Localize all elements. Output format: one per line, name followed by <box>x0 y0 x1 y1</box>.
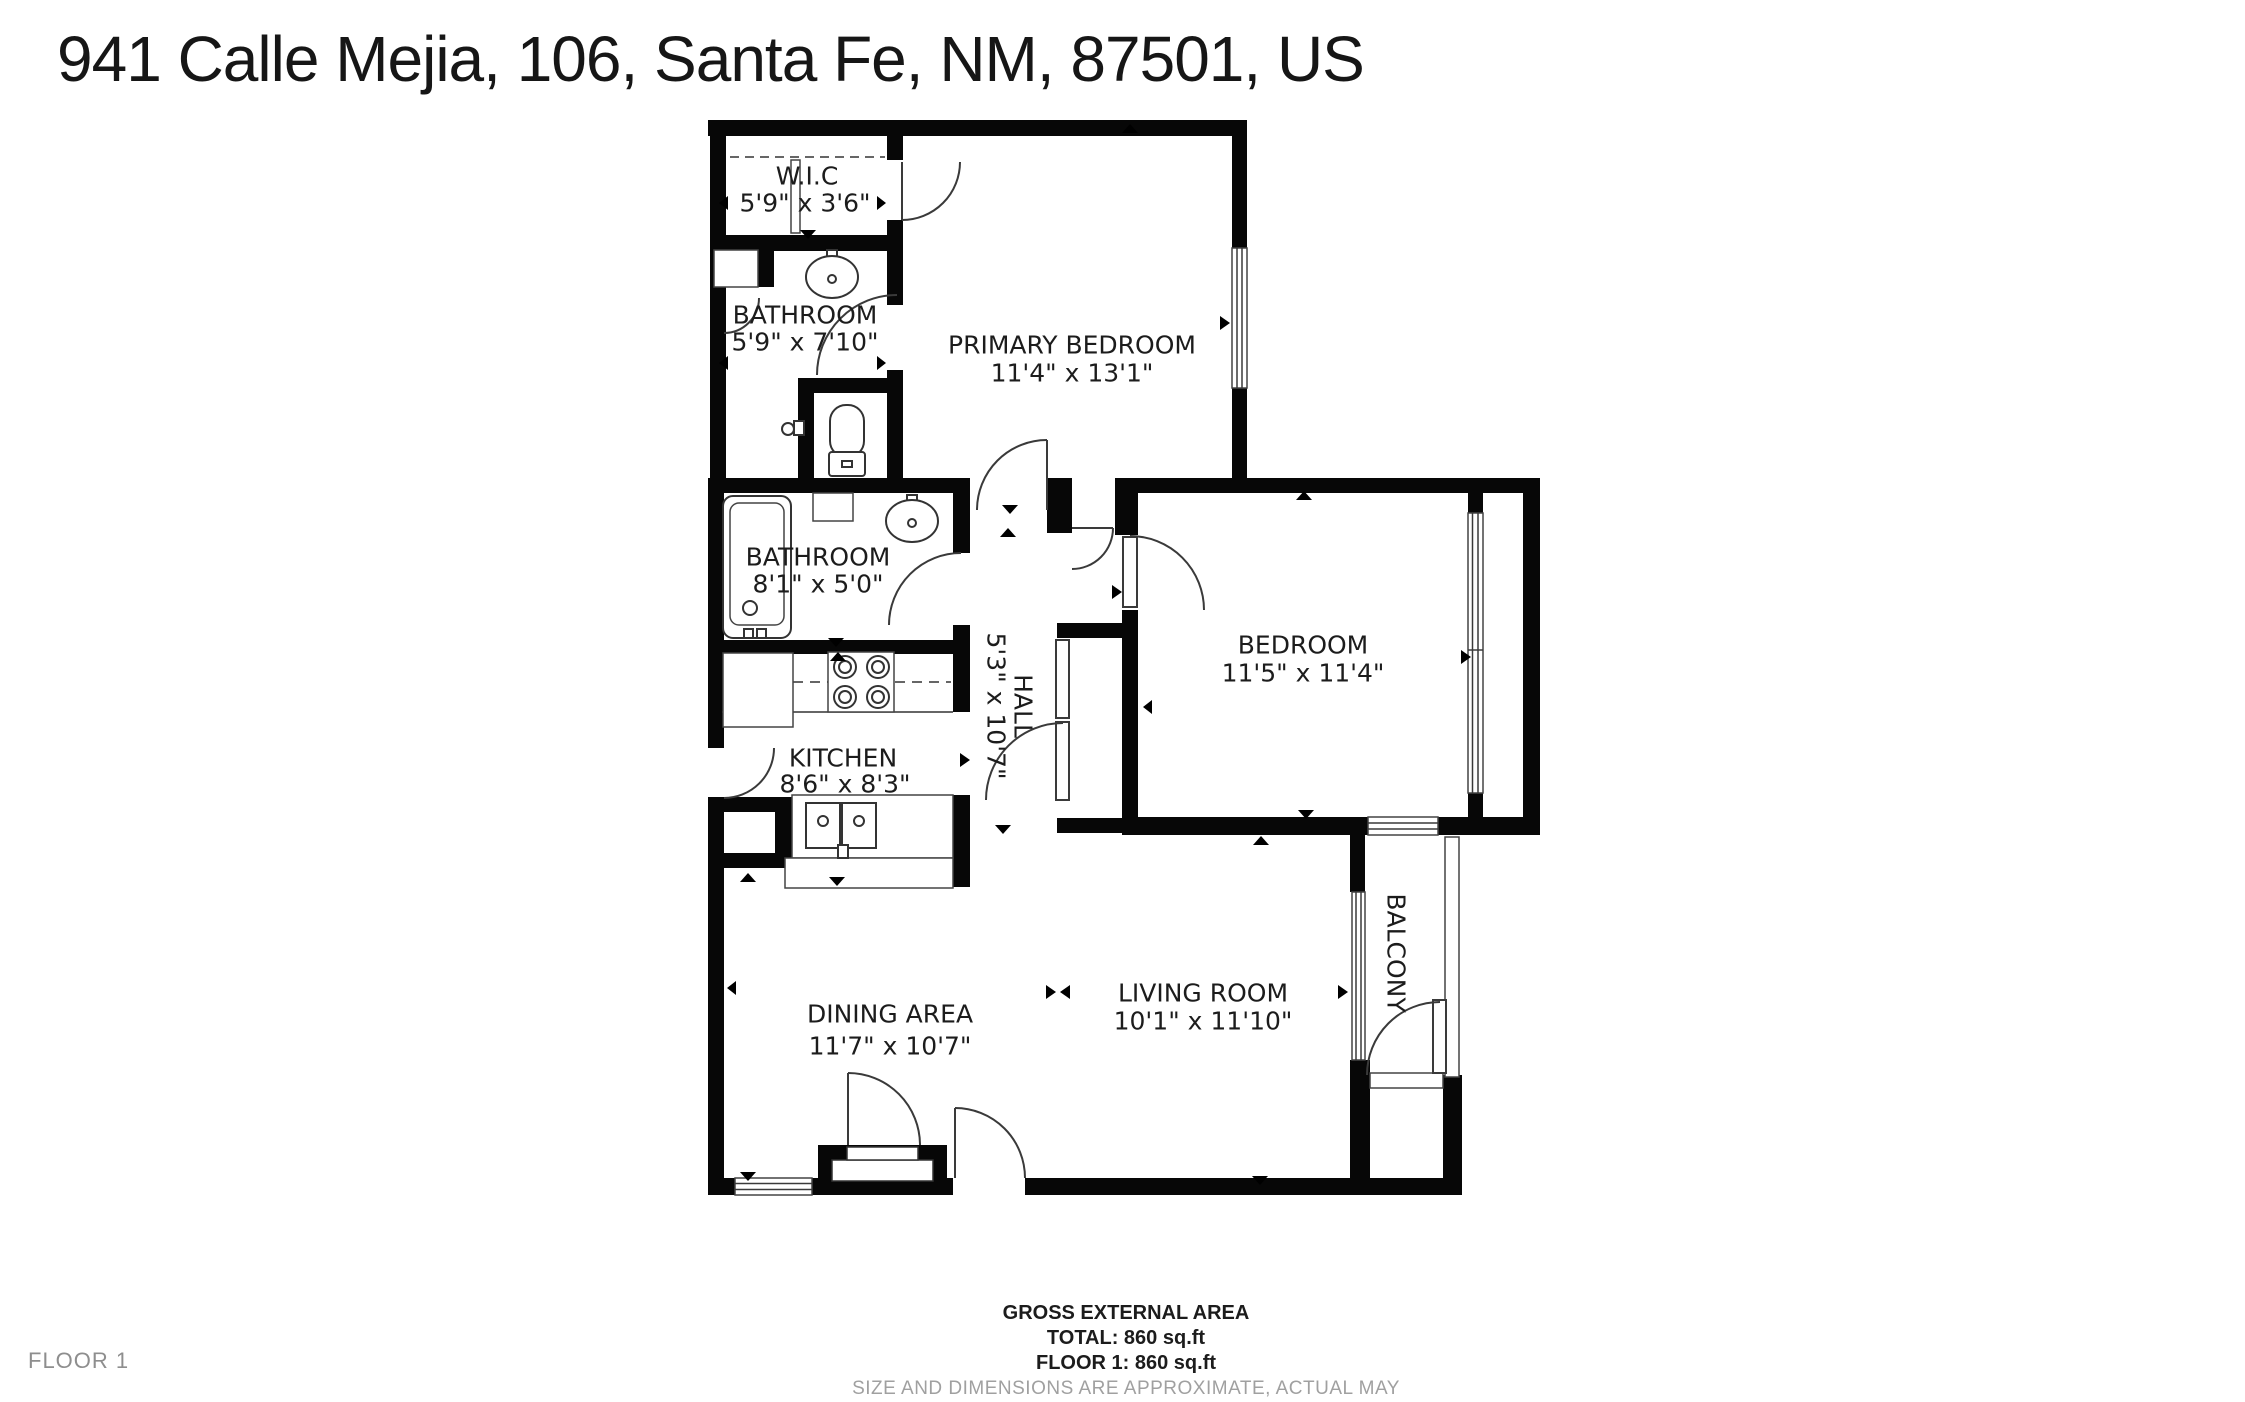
area-summary: GROSS EXTERNAL AREA TOTAL: 860 sq.ft FLO… <box>826 1300 1426 1402</box>
balcony-window <box>1368 817 1438 835</box>
room-label-primary-bedroom: PRIMARY BEDROOM <box>948 331 1196 360</box>
marker-triangle <box>740 873 756 882</box>
vanity-cabinet <box>813 493 853 521</box>
room-dims-wic: 5'9" x 3'6" <box>739 189 870 218</box>
marker-triangle <box>995 825 1011 834</box>
marker-triangle <box>1060 985 1070 999</box>
fridge-icon <box>723 653 793 727</box>
primary-bedroom-door-hall <box>977 440 1047 510</box>
room-dims-primary-bedroom: 11'4" x 13'1" <box>991 359 1154 388</box>
entry-door <box>848 1073 920 1145</box>
bedroom-door <box>1123 536 1204 610</box>
floor-area: FLOOR 1: 860 sq.ft <box>826 1351 1426 1376</box>
room-label-bedroom: BEDROOM <box>1238 631 1369 660</box>
primary-bedroom-door-top <box>902 162 960 220</box>
linen-closet-door <box>1072 528 1113 569</box>
total-area: TOTAL: 860 sq.ft <box>826 1326 1426 1351</box>
floor-label: FLOOR 1 <box>28 1348 129 1374</box>
room-label-dining: DINING AREA <box>807 1000 973 1029</box>
marker-triangle <box>1253 836 1269 845</box>
room-label-hall-group: HALL 5'3" x 10'7" <box>982 633 1038 780</box>
room-label-balcony-group: BALCONY <box>1382 893 1411 1013</box>
marker-triangle <box>877 196 886 210</box>
marker-triangle <box>1002 505 1018 514</box>
marker-triangle <box>1143 700 1152 714</box>
marker-triangle <box>1000 528 1016 537</box>
room-label-bathroom1: BATHROOM <box>733 301 878 330</box>
entry-steps <box>818 1145 947 1195</box>
room-label-wic: W.I.C <box>776 162 839 191</box>
marker-triangle <box>1220 316 1230 330</box>
room-dims-bathroom1: 5'9" x 7'10" <box>732 328 879 357</box>
shower-icon <box>782 421 804 435</box>
room-dims-kitchen: 8'6" x 8'3" <box>779 770 910 799</box>
toilet-icon <box>829 405 865 476</box>
marker-triangle <box>960 753 970 767</box>
marker-triangle <box>1046 985 1056 999</box>
primary-bedroom-window <box>1232 248 1247 388</box>
sink-icon <box>886 495 938 542</box>
room-label-balcony: BALCONY <box>1382 893 1411 1013</box>
room-dims-dining: 11'7" x 10'7" <box>809 1032 972 1061</box>
living-room-window <box>1352 892 1365 1060</box>
kitchen-sink-icon <box>785 795 953 888</box>
marker-triangle <box>727 981 736 995</box>
marker-triangle <box>1338 985 1348 999</box>
dining-window <box>735 1178 812 1195</box>
marker-triangle <box>877 356 886 370</box>
balcony-threshold <box>1370 1073 1443 1088</box>
floorplan-page: 941 Calle Mejia, 106, Santa Fe, NM, 8750… <box>0 0 2245 1402</box>
room-label-living: LIVING ROOM <box>1118 979 1288 1008</box>
gross-area-title: GROSS EXTERNAL AREA <box>826 1300 1426 1326</box>
balcony-railing <box>1445 837 1459 1077</box>
kitchen-side-door <box>724 748 774 798</box>
room-dims-living: 10'1" x 11'10" <box>1114 1007 1293 1036</box>
marker-triangle <box>1112 585 1122 599</box>
patio-door <box>955 1108 1025 1178</box>
floorplan-drawing: W.I.C 5'9" x 3'6" BATHROOM 5'9" x 7'10" … <box>0 0 2245 1402</box>
disclaimer: SIZE AND DIMENSIONS ARE APPROXIMATE, ACT… <box>826 1376 1426 1402</box>
room-label-kitchen: KITCHEN <box>789 744 897 773</box>
room-dims-bedroom: 11'5" x 11'4" <box>1222 659 1385 688</box>
room-dims-hall: 5'3" x 10'7" <box>982 633 1011 780</box>
bathroom-niche <box>714 250 758 287</box>
room-label-hall: HALL <box>1009 674 1038 738</box>
room-dims-bathroom2: 8'1" x 5'0" <box>752 570 883 599</box>
sink-icon <box>806 250 858 298</box>
bedroom-window <box>1468 513 1483 793</box>
bathroom2-door <box>889 553 961 625</box>
room-label-bathroom2: BATHROOM <box>746 543 891 572</box>
